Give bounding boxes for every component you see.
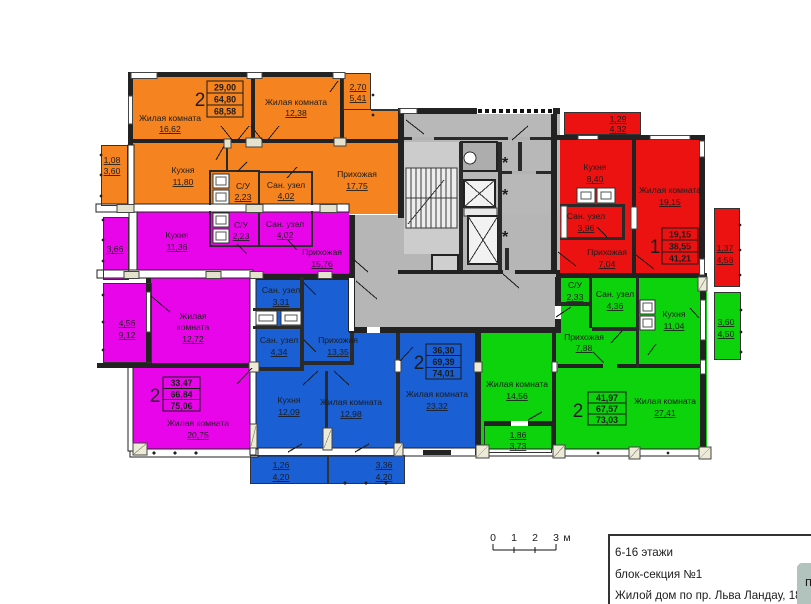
- svg-text:Жилая комната: Жилая комната: [265, 97, 327, 107]
- svg-text:1,86: 1,86: [510, 430, 527, 440]
- svg-text:Жилой дом по пр. Льва Ландау,: Жилой дом по пр. Льва Ландау, 18Б: [615, 589, 810, 602]
- svg-text:67,57: 67,57: [596, 404, 618, 414]
- svg-text:68,58: 68,58: [214, 107, 236, 117]
- svg-text:4,34: 4,34: [271, 347, 288, 357]
- svg-text:Жилая комната: Жилая комната: [486, 379, 548, 389]
- svg-text:п: п: [805, 574, 811, 589]
- svg-text:3,60: 3,60: [718, 317, 735, 327]
- svg-text:33,47: 33,47: [170, 378, 192, 388]
- svg-text:1,29: 1,29: [610, 114, 627, 124]
- svg-text:1,26: 1,26: [273, 460, 290, 470]
- svg-text:Прихожая: Прихожая: [564, 332, 604, 342]
- svg-text:5,41: 5,41: [350, 93, 367, 103]
- svg-text:23,32: 23,32: [426, 401, 448, 411]
- svg-text:Сан. узел: Сан. узел: [596, 289, 634, 299]
- svg-text:14,56: 14,56: [506, 391, 528, 401]
- svg-text:2,23: 2,23: [235, 192, 252, 202]
- svg-text:1,08: 1,08: [104, 155, 121, 165]
- svg-text:2: 2: [150, 386, 161, 407]
- svg-text:20,75: 20,75: [187, 430, 209, 440]
- svg-text:Кухня: Кухня: [172, 165, 195, 175]
- svg-text:4,50: 4,50: [718, 329, 735, 339]
- svg-text:2: 2: [195, 90, 206, 111]
- svg-text:блок-секция №1: блок-секция №1: [615, 568, 702, 581]
- svg-text:12,09: 12,09: [278, 407, 300, 417]
- svg-text:Кухня: Кухня: [663, 309, 686, 319]
- svg-text:1,37: 1,37: [717, 243, 734, 253]
- svg-text:2: 2: [573, 401, 584, 422]
- svg-text:Кухня: Кухня: [278, 395, 301, 405]
- svg-text:38,55: 38,55: [669, 242, 691, 252]
- svg-text:Жилая комната: Жилая комната: [167, 418, 229, 428]
- svg-text:11,04: 11,04: [664, 321, 685, 331]
- svg-text:Прихожая: Прихожая: [302, 247, 342, 257]
- svg-text:4,56: 4,56: [119, 318, 136, 328]
- svg-text:36,30: 36,30: [432, 345, 454, 355]
- svg-text:0: 0: [490, 532, 496, 544]
- svg-text:4,02: 4,02: [278, 191, 295, 201]
- svg-text:2: 2: [532, 532, 538, 544]
- svg-text:Жилая комната: Жилая комната: [139, 113, 201, 123]
- svg-text:27,41: 27,41: [654, 408, 676, 418]
- svg-text:Сан. узел: Сан. узел: [267, 180, 305, 190]
- svg-text:9,12: 9,12: [119, 330, 136, 340]
- svg-text:Прихожая: Прихожая: [318, 335, 358, 345]
- svg-text:Жилая комната: Жилая комната: [639, 185, 701, 195]
- svg-text:12,72: 12,72: [182, 334, 204, 344]
- svg-text:Сан. узел: Сан. узел: [266, 219, 304, 229]
- svg-text:*: *: [502, 187, 509, 204]
- svg-text:Прихожая: Прихожая: [337, 169, 377, 179]
- svg-text:Жилая: Жилая: [179, 311, 207, 321]
- svg-text:комната: комната: [177, 322, 210, 332]
- svg-text:75,06: 75,06: [170, 401, 192, 411]
- svg-text:3,66: 3,66: [107, 244, 124, 254]
- svg-text:*: *: [502, 155, 509, 172]
- svg-text:Сан. узел: Сан. узел: [567, 211, 605, 221]
- svg-text:4,36: 4,36: [607, 301, 624, 311]
- svg-text:7,88: 7,88: [576, 343, 593, 353]
- svg-text:69,39: 69,39: [432, 357, 454, 367]
- svg-text:13,35: 13,35: [327, 347, 349, 357]
- svg-text:1: 1: [650, 237, 661, 258]
- svg-text:1: 1: [511, 532, 517, 544]
- svg-text:4,20: 4,20: [376, 472, 393, 482]
- svg-text:8,40: 8,40: [587, 174, 604, 184]
- svg-text:Жилая комната: Жилая комната: [634, 396, 696, 406]
- svg-text:41,97: 41,97: [596, 393, 618, 403]
- svg-text:С/У: С/У: [568, 280, 583, 290]
- svg-text:66,84: 66,84: [170, 389, 192, 399]
- svg-text:19,15: 19,15: [659, 197, 681, 207]
- svg-text:19,15: 19,15: [669, 230, 691, 240]
- svg-text:*: *: [502, 229, 509, 246]
- svg-text:16,62: 16,62: [159, 124, 181, 134]
- svg-text:Сан. узел: Сан. узел: [260, 335, 298, 345]
- svg-text:Прихожая: Прихожая: [587, 247, 627, 257]
- svg-text:11,80: 11,80: [173, 177, 194, 187]
- svg-text:3,96: 3,96: [578, 223, 595, 233]
- svg-text:м: м: [563, 532, 570, 544]
- svg-text:6-16 этажи: 6-16 этажи: [615, 546, 673, 559]
- svg-text:Кухня: Кухня: [584, 162, 607, 172]
- svg-text:С/У: С/У: [236, 181, 251, 191]
- svg-text:11,36: 11,36: [167, 242, 188, 252]
- svg-text:С/У: С/У: [234, 220, 249, 230]
- svg-text:3,73: 3,73: [510, 441, 527, 451]
- svg-text:41,21: 41,21: [669, 254, 691, 264]
- svg-text:Жилая комната: Жилая комната: [320, 397, 382, 407]
- svg-text:29,00: 29,00: [214, 83, 236, 93]
- svg-text:2,33: 2,33: [567, 292, 584, 302]
- svg-text:3,36: 3,36: [376, 460, 393, 470]
- svg-text:2,23: 2,23: [233, 231, 250, 241]
- svg-text:64,80: 64,80: [214, 95, 236, 105]
- svg-text:4,02: 4,02: [277, 230, 294, 240]
- svg-text:3,60: 3,60: [104, 166, 121, 176]
- svg-text:12,38: 12,38: [285, 108, 307, 118]
- svg-text:Сан. узел: Сан. узел: [262, 285, 300, 295]
- svg-text:4,56: 4,56: [717, 255, 734, 265]
- svg-text:73,03: 73,03: [596, 415, 618, 425]
- svg-text:2,70: 2,70: [350, 82, 367, 92]
- svg-text:4,20: 4,20: [273, 472, 290, 482]
- svg-text:3,31: 3,31: [273, 297, 290, 307]
- svg-text:74,01: 74,01: [432, 369, 454, 379]
- svg-text:15,76: 15,76: [311, 259, 333, 269]
- svg-text:12,98: 12,98: [340, 409, 362, 419]
- svg-text:7,04: 7,04: [599, 259, 616, 269]
- svg-text:17,75: 17,75: [346, 181, 368, 191]
- svg-text:3: 3: [553, 532, 559, 544]
- svg-text:2: 2: [414, 353, 425, 374]
- svg-text:Жилая комната: Жилая комната: [406, 389, 468, 399]
- svg-text:Кухня: Кухня: [166, 230, 189, 240]
- svg-text:4,32: 4,32: [610, 124, 627, 134]
